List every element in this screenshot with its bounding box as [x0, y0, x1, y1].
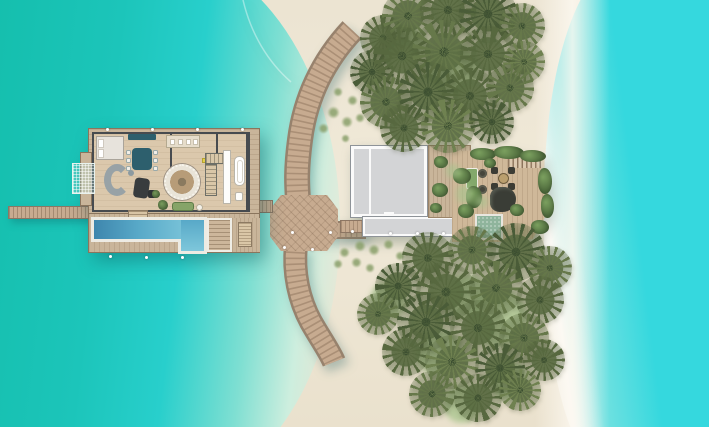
path-light — [329, 231, 332, 234]
wall — [248, 132, 250, 212]
terrace-hedge — [538, 168, 552, 194]
outdoor-dining-table — [498, 173, 509, 184]
terrace-ground-cover — [446, 164, 460, 178]
beach-shrub — [339, 247, 350, 258]
beach-shrub — [318, 123, 329, 134]
potted-plant — [158, 200, 168, 210]
beach-house-roof — [350, 145, 428, 218]
path-light — [351, 230, 354, 233]
side-table — [196, 204, 203, 211]
beach-shrub — [383, 239, 394, 250]
coffee-table — [128, 170, 134, 176]
terrace-hedge — [510, 204, 524, 216]
rattan-chair — [478, 169, 487, 178]
path-light — [291, 231, 294, 234]
terrace-ground-cover — [456, 184, 472, 204]
beach-shrub — [365, 263, 375, 273]
path-light — [311, 248, 314, 251]
terrace-hedge — [520, 150, 546, 162]
beach-shrub — [333, 87, 343, 97]
potted-plant — [152, 190, 160, 198]
path-light — [106, 128, 109, 131]
beach-shrub — [333, 259, 343, 269]
outdoor-chair — [508, 167, 515, 174]
palm-tree — [470, 100, 514, 144]
path-light — [241, 128, 244, 131]
jetty-plaza — [270, 195, 338, 251]
palm-tree — [421, 99, 475, 153]
palm-tree — [357, 293, 399, 335]
palm-tree — [409, 371, 455, 417]
terrace-hedge — [458, 204, 474, 218]
curved-sofa — [104, 164, 130, 196]
bathroom-vanity — [223, 150, 231, 204]
dining-chair — [153, 158, 158, 163]
bathtub — [234, 156, 245, 186]
resort-site-plan — [0, 0, 709, 427]
beach-shrub — [351, 257, 362, 268]
dining-table — [132, 148, 152, 170]
terrace-hedge — [432, 183, 448, 197]
terrace-hedge — [484, 158, 496, 168]
overwater-villa — [76, 126, 272, 258]
outdoor-chair — [491, 167, 498, 174]
staircase-lower — [205, 164, 217, 196]
path-light — [389, 232, 392, 235]
path-light — [181, 256, 184, 259]
terrace-ground-cover — [476, 196, 488, 208]
terrace-hedge — [541, 194, 554, 218]
garden-bench — [172, 202, 194, 211]
swimming-pool — [94, 220, 193, 239]
terrace-hedge — [434, 156, 448, 168]
bed — [96, 136, 124, 160]
terrace-hedge — [430, 203, 442, 213]
dining-chair — [153, 150, 158, 155]
palm-tree — [382, 328, 430, 376]
path-light — [196, 128, 199, 131]
beach-shrub — [368, 244, 380, 256]
dining-chair — [126, 158, 131, 163]
path-light — [442, 232, 445, 235]
beach-shrub — [341, 116, 353, 128]
palm-tree — [454, 374, 502, 422]
path-light — [416, 232, 419, 235]
path-light — [151, 128, 154, 131]
overwater-hammock-net — [72, 163, 95, 194]
roof-wall-line — [369, 148, 371, 215]
sun-lounger — [238, 222, 252, 247]
beach-shrub — [347, 95, 358, 106]
path-light — [109, 255, 112, 258]
timber-sun-deck — [207, 218, 232, 252]
console-bench — [166, 135, 200, 148]
palm-tree — [499, 369, 541, 411]
path-light — [145, 256, 148, 259]
beach-shrub — [327, 106, 340, 119]
credenza — [128, 134, 156, 140]
beach-shrub — [341, 134, 350, 143]
toilet — [235, 192, 243, 201]
dining-chair — [126, 150, 131, 155]
path-light — [283, 246, 286, 249]
dining-chair — [153, 166, 158, 171]
swimming-pool-arm — [181, 220, 204, 251]
beach-shrub — [354, 240, 366, 252]
round-daybed — [164, 164, 200, 200]
